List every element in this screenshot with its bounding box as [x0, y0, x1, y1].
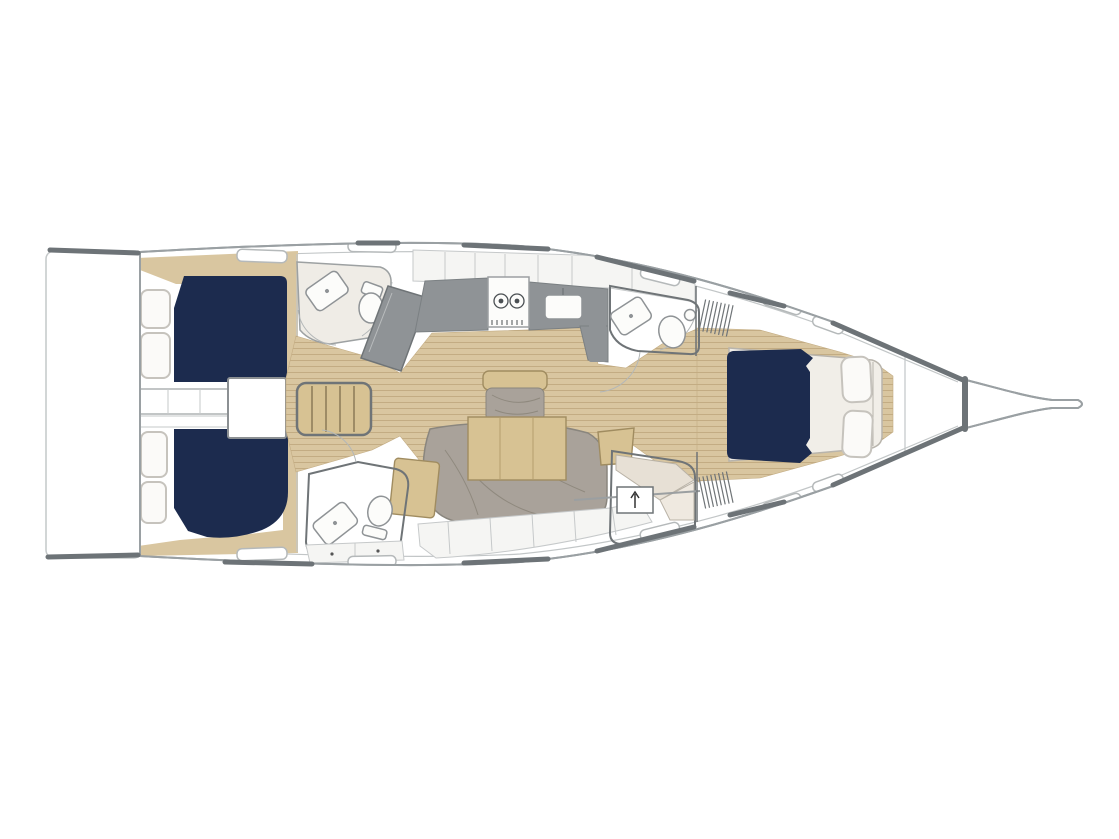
- stove-burner-icon: [515, 299, 520, 304]
- starboard-aft-berth: [174, 429, 288, 538]
- hull-window: [237, 249, 287, 263]
- storage-row: [136, 389, 232, 414]
- yacht-floor-plan-canvas: [0, 0, 1119, 839]
- port-aft-berth: [174, 276, 287, 382]
- salon-table: [468, 417, 566, 480]
- berth-pillow: [141, 482, 166, 523]
- handle: [376, 549, 379, 552]
- galley-sink: [545, 295, 582, 319]
- head-bulkhead: [589, 296, 606, 362]
- chaise-lounge: [389, 458, 440, 518]
- storage-row: [136, 416, 232, 427]
- berth-pillow: [141, 290, 170, 328]
- forward-berth-duvet: [727, 349, 813, 463]
- berth-pillow: [141, 432, 167, 477]
- salon-bench: [483, 371, 547, 390]
- bench-cushion: [486, 388, 544, 421]
- handle: [330, 552, 333, 555]
- berth-pillow: [842, 410, 873, 457]
- hull-window: [237, 547, 287, 561]
- swim-platform: [46, 251, 142, 558]
- berth-pillow: [141, 333, 170, 378]
- forward-cabin: [727, 348, 882, 463]
- yacht-floor-plan: [0, 0, 1119, 839]
- galley-counter-left: [415, 278, 488, 332]
- stove-knobs: [492, 320, 522, 325]
- stove-burner-icon: [499, 299, 504, 304]
- port-aft-cabin: [138, 251, 298, 390]
- head-fitting: [685, 310, 696, 321]
- engine-box: [228, 378, 286, 438]
- berth-pillow: [841, 356, 872, 402]
- companionway-steps: [297, 383, 371, 435]
